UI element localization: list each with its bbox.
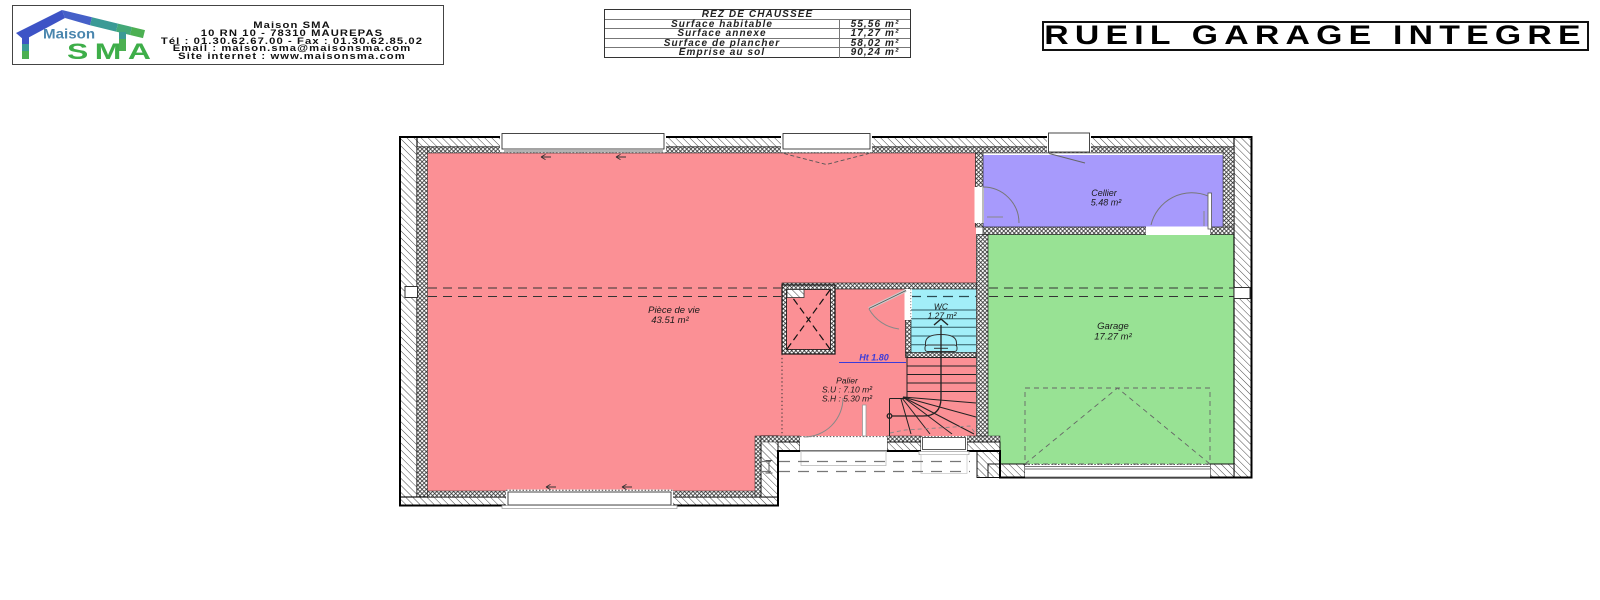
svg-text:1.27 m²: 1.27 m² [928,311,958,321]
svg-text:17.27 m²: 17.27 m² [1094,332,1132,343]
svg-text:5.48 m²: 5.48 m² [1091,198,1123,208]
svg-text:Cellier: Cellier [1091,188,1118,198]
svg-text:S.H : 5.30 m²: S.H : 5.30 m² [822,394,873,404]
svg-text:Ht 1.80: Ht 1.80 [859,353,889,363]
svg-text:43.51 m²: 43.51 m² [651,315,689,326]
svg-text:Garage: Garage [1097,321,1129,332]
